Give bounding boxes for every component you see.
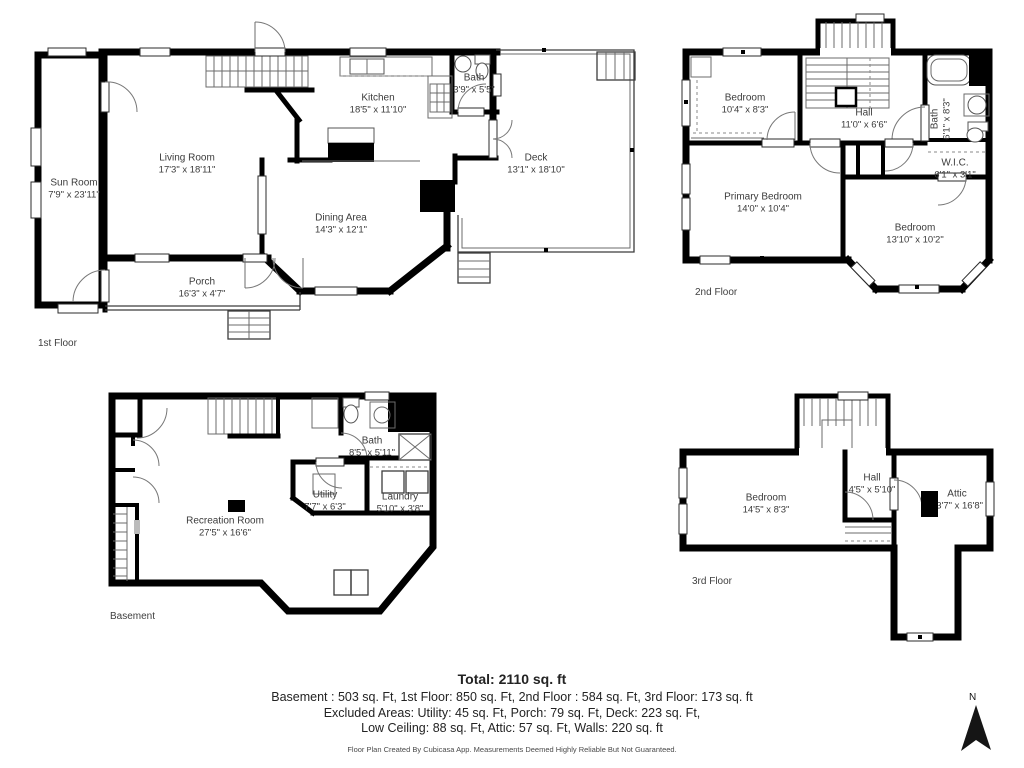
room-label-bath-1st: Bath 3'9" x 5'5" — [453, 71, 495, 96]
room-label-attic: Attic 13'7" x 16'8" — [931, 487, 983, 512]
room-label-recreation-room: Recreation Room 27'5" x 16'6" — [186, 514, 264, 539]
third-floor-plan — [679, 392, 994, 641]
caption-3rd-floor: 3rd Floor — [692, 576, 732, 587]
room-label-hall-2f: Hall 11'0" x 6'6" — [841, 106, 887, 131]
room-label-utility: Utility 7'7" x 6'3" — [304, 488, 346, 513]
floor-areas-line: Basement : 503 sq. Ft, 1st Floor: 850 sq… — [0, 690, 1024, 706]
room-label-bedroom-3f: Bedroom 14'5" x 8'3" — [743, 491, 790, 516]
credit-line: Floor Plan Created By Cubicasa App. Meas… — [0, 745, 1024, 754]
room-label-living-room: Living Room 17'3" x 18'11" — [159, 151, 216, 176]
room-label-bath-bsmt: Bath 8'5" x 5'11" — [349, 434, 395, 459]
room-label-laundry: Laundry 5'10" x 3'8" — [377, 490, 424, 515]
caption-1st-floor: 1st Floor — [38, 338, 77, 349]
room-label-kitchen: Kitchen 18'5" x 11'10" — [350, 91, 407, 116]
room-label-hall-3f: Hall 4'5" x 5'10" — [849, 471, 896, 496]
north-label: N — [969, 692, 976, 703]
area-summary: Total: 2110 sq. ft Basement : 503 sq. Ft… — [0, 671, 1024, 754]
room-label-bedroom-2f-b: Bedroom 13'10" x 10'2" — [886, 221, 943, 246]
floor-plan-page: Sun Room 7'9" x 23'11" Living Room 17'3"… — [0, 0, 1024, 768]
excluded-areas-line-2: Low Ceiling: 88 sq. Ft, Attic: 57 sq. Ft… — [0, 721, 1024, 737]
room-label-porch: Porch 16'3" x 4'7" — [179, 275, 226, 300]
chimney-block — [921, 491, 938, 517]
room-label-wic: W.I.C. 6'1" x 3'1" — [934, 156, 976, 181]
second-floor-plan — [682, 14, 989, 293]
caption-2nd-floor: 2nd Floor — [695, 287, 737, 298]
total-area: Total: 2110 sq. ft — [0, 671, 1024, 687]
excluded-areas-line: Excluded Areas: Utility: 45 sq. Ft, Porc… — [0, 706, 1024, 722]
room-label-deck: Deck 13'1" x 18'10" — [507, 151, 564, 176]
first-floor-plan — [31, 22, 635, 339]
room-label-bath-2f: Bath 6'1" x 8'3" — [928, 98, 953, 140]
room-label-bedroom-2f-a: Bedroom 10'4" x 8'3" — [722, 91, 769, 116]
room-label-primary-bedroom: Primary Bedroom 14'0" x 10'4" — [724, 190, 802, 215]
room-label-dining-area: Dining Area 14'3" x 12'1" — [315, 211, 367, 236]
caption-basement: Basement — [110, 611, 155, 622]
room-label-sun-room: Sun Room 7'9" x 23'11" — [48, 176, 99, 201]
